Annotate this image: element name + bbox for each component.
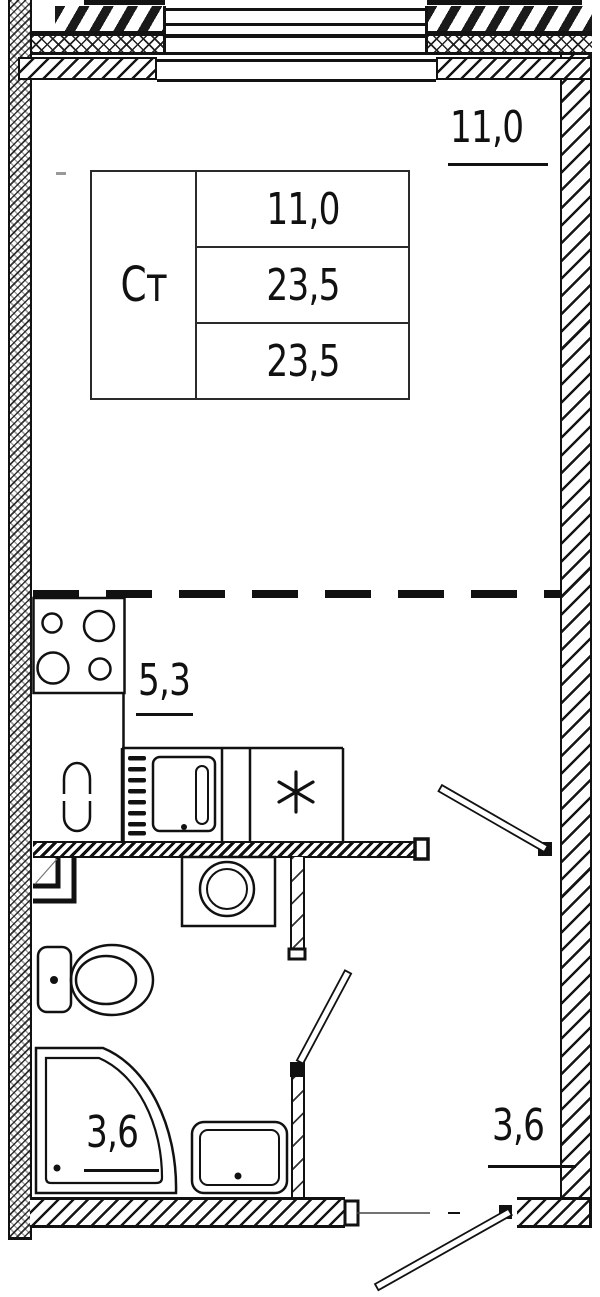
wall-end-cap bbox=[289, 949, 305, 959]
legend-value-row: 23,5 bbox=[197, 322, 408, 398]
sink-icon bbox=[192, 1122, 287, 1193]
bathroom-door-icon bbox=[297, 970, 351, 1063]
legend-unit-type: Ст bbox=[92, 172, 197, 398]
room-area-underline-hallway bbox=[488, 1165, 576, 1168]
room-area-underline-bathroom bbox=[84, 1169, 159, 1172]
legend-table: Ст 11,0 23,5 23,5 bbox=[90, 170, 410, 400]
room-area-label-bathroom: 3,6 bbox=[86, 1111, 153, 1155]
vent-shaft-icon bbox=[33, 857, 74, 901]
legend-value-row: 11,0 bbox=[197, 172, 408, 246]
radiator-icon bbox=[64, 763, 90, 831]
legend-values-column: 11,0 23,5 23,5 bbox=[197, 172, 408, 398]
tick-mark bbox=[56, 172, 66, 175]
toilet-icon bbox=[38, 945, 153, 1015]
hall-door-icon bbox=[438, 785, 547, 852]
kitchen-appliance-block bbox=[122, 748, 343, 841]
washing-machine-asterisk-icon bbox=[279, 772, 313, 812]
wall-end-cap bbox=[345, 1201, 358, 1225]
floor-plan: Ст 11,0 23,5 23,5 11,0 5,3 3,6 3,6 bbox=[0, 0, 600, 1297]
legend-value-row: 23,5 bbox=[197, 246, 408, 322]
wall-end-cap bbox=[415, 839, 428, 859]
stove-icon bbox=[34, 598, 125, 693]
fridge-icon bbox=[153, 757, 215, 831]
room-area-label-living: 11,0 bbox=[450, 106, 544, 150]
room-area-underline-kitchen bbox=[136, 713, 193, 716]
rack-icon bbox=[128, 756, 146, 836]
entrance-door-icon bbox=[375, 1209, 512, 1290]
legend-unit-type-label: Ст bbox=[120, 257, 166, 313]
room-area-label-hallway: 3,6 bbox=[492, 1104, 559, 1148]
washbasin-icon bbox=[182, 857, 275, 926]
room-area-label-kitchen: 5,3 bbox=[138, 659, 205, 703]
room-area-underline-living bbox=[448, 163, 548, 166]
